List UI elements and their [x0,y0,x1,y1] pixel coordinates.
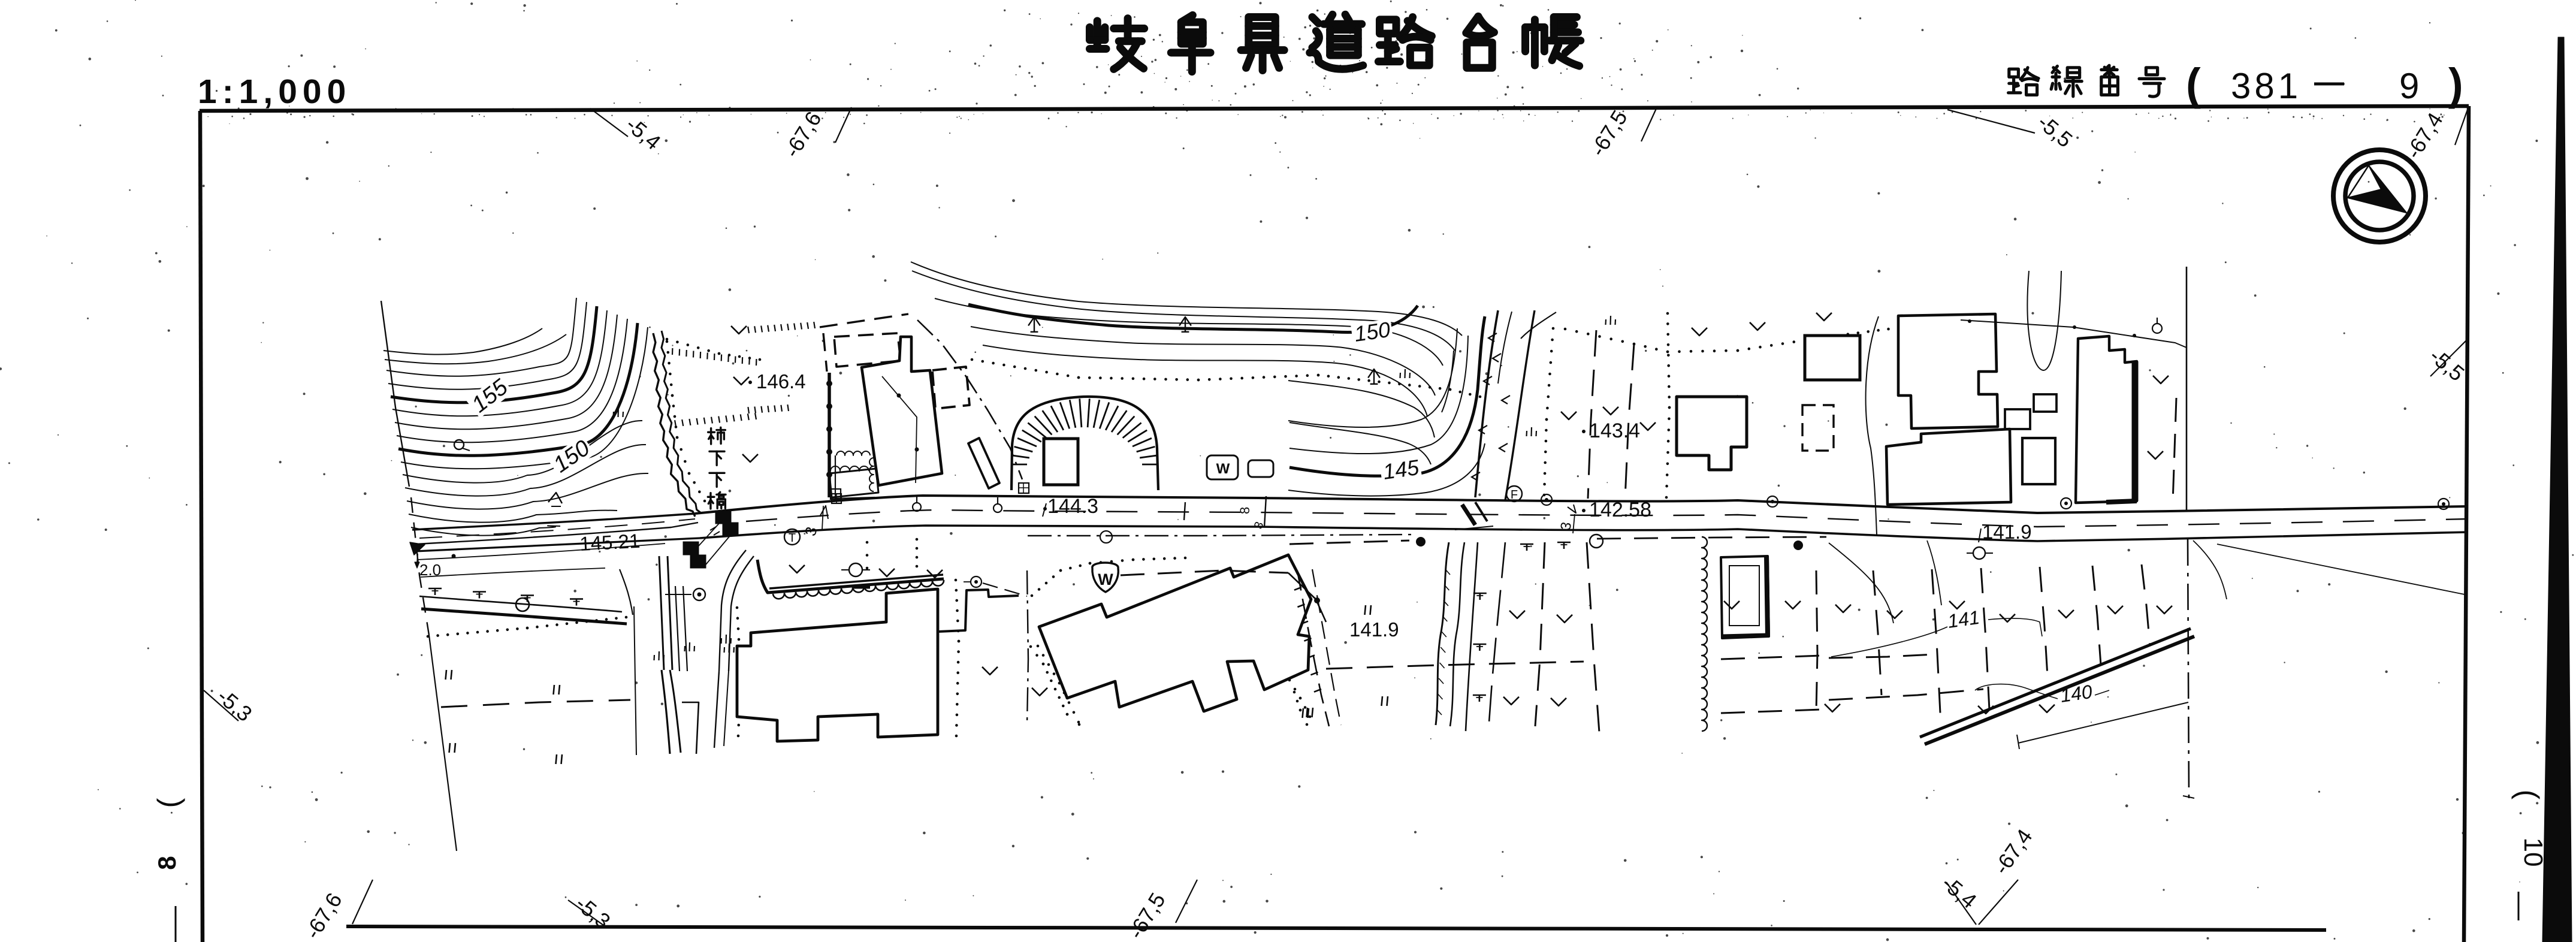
svg-text:145.21: 145.21 [579,530,641,555]
svg-text:150: 150 [1352,317,1391,346]
svg-text:145: 145 [1381,455,1421,484]
svg-text:142.58: 142.58 [1589,499,1651,521]
svg-text:141: 141 [1946,606,1981,632]
svg-text:W: W [1216,461,1230,477]
svg-text:9: 9 [2399,66,2419,106]
svg-text:141.9: 141.9 [1349,618,1399,641]
svg-text:8: 8 [153,856,181,869]
svg-text:(: ( [152,798,185,808]
svg-text:F: F [1511,488,1518,502]
svg-text:2.0: 2.0 [419,561,441,579]
svg-text:8: 8 [1237,507,1252,514]
svg-text:(: ( [2186,59,2201,109]
svg-text:146.4: 146.4 [756,370,806,393]
svg-text:W: W [1098,570,1113,588]
svg-text:(: ( [2511,790,2545,800]
svg-text:T: T [789,532,796,545]
svg-text:): ) [2448,59,2463,109]
svg-text:144.3: 144.3 [1047,495,1098,518]
svg-text:141.9: 141.9 [1982,521,2032,543]
svg-text:10: 10 [2518,838,2548,867]
svg-text:1:1,000: 1:1,000 [198,73,351,111]
svg-text:381: 381 [2231,66,2302,106]
svg-text:143.4: 143.4 [1589,419,1640,442]
